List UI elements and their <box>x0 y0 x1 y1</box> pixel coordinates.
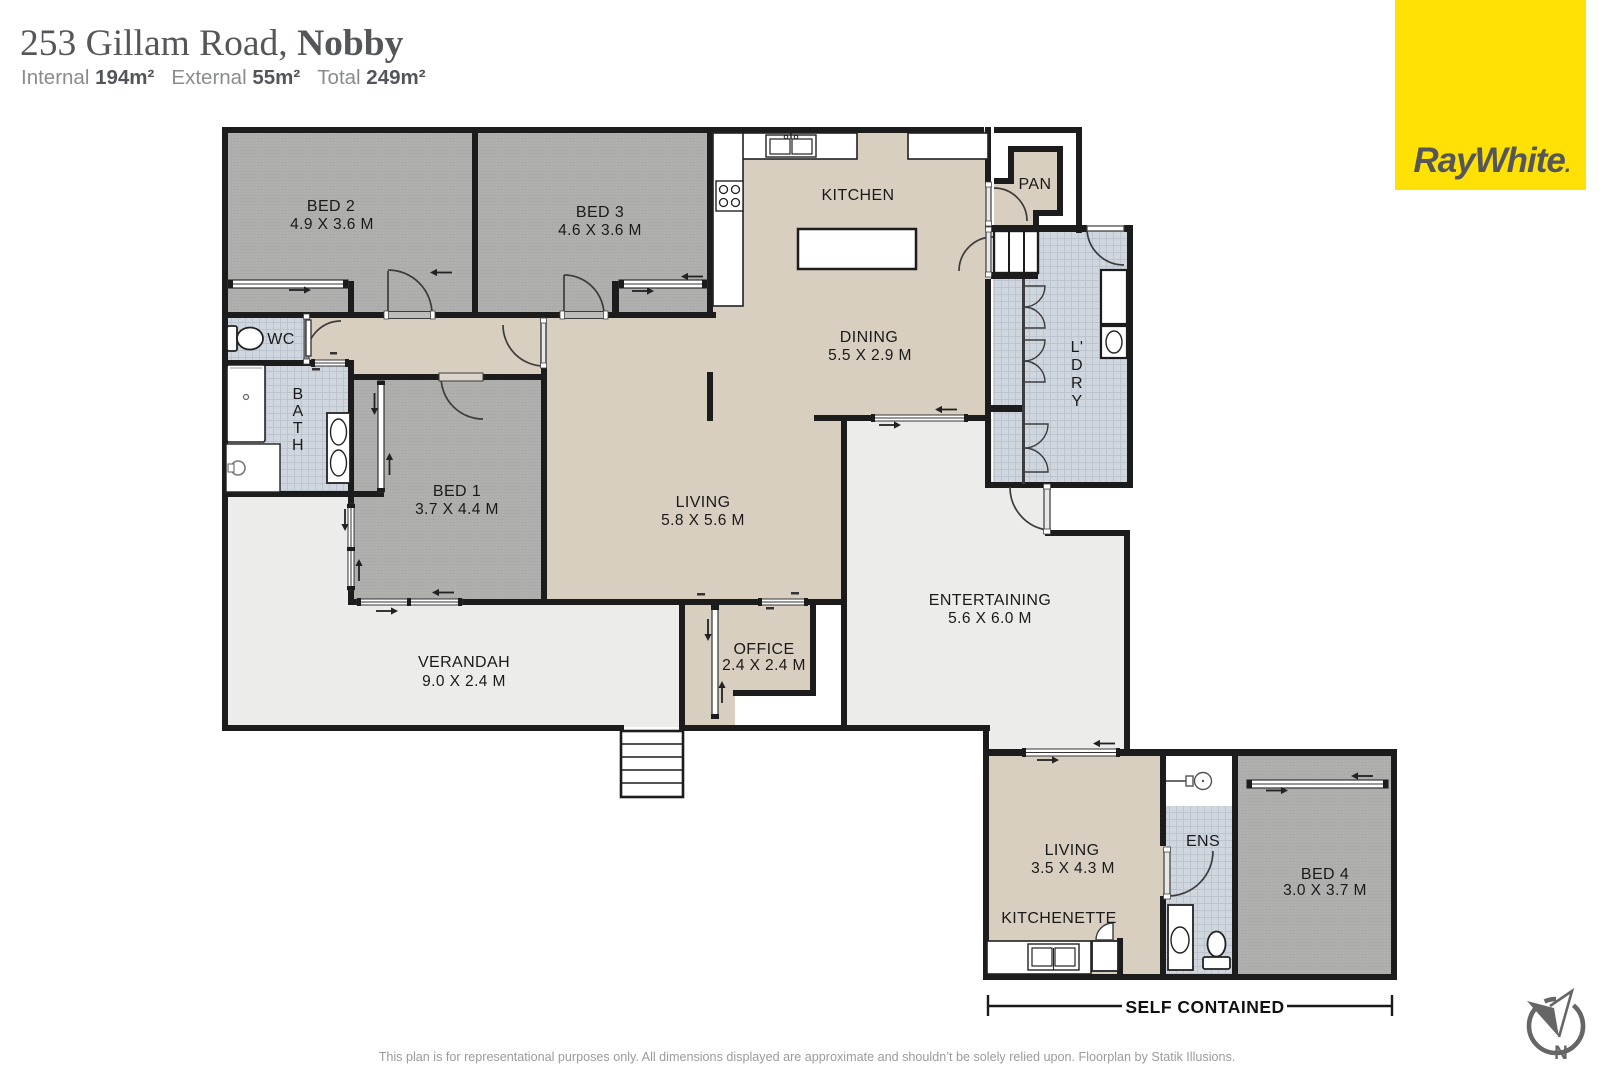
svg-text:A: A <box>292 403 303 420</box>
svg-text:WC: WC <box>267 331 294 348</box>
svg-text:4.9 X 3.6 M: 4.9 X 3.6 M <box>290 216 374 233</box>
svg-text:LIVING: LIVING <box>676 494 731 511</box>
svg-text:RayWhite.: RayWhite. <box>1413 141 1570 180</box>
svg-text:OFFICE: OFFICE <box>733 641 794 658</box>
svg-text:253 Gillam Road, Nobby: 253 Gillam Road, Nobby <box>20 23 404 64</box>
svg-text:BED 2: BED 2 <box>307 198 355 215</box>
svg-text:PAN: PAN <box>1019 176 1052 193</box>
svg-text:2.4 X 2.4 M: 2.4 X 2.4 M <box>722 657 806 674</box>
svg-text:This plan is for representatio: This plan is for representational purpos… <box>379 1050 1236 1064</box>
svg-text:D: D <box>1071 357 1083 374</box>
svg-text:LIVING: LIVING <box>1045 842 1100 859</box>
svg-text:BED 1: BED 1 <box>433 483 481 500</box>
svg-text:ENS: ENS <box>1186 833 1220 850</box>
svg-text:9.0 X 2.4 M: 9.0 X 2.4 M <box>422 673 506 690</box>
svg-text:L': L' <box>1071 339 1084 356</box>
svg-text:4.6 X 3.6 M: 4.6 X 3.6 M <box>558 222 642 239</box>
svg-text:ENTERTAINING: ENTERTAINING <box>929 592 1051 609</box>
svg-text:KITCHENETTE: KITCHENETTE <box>1001 910 1117 927</box>
svg-text:B: B <box>292 386 303 403</box>
svg-text:H: H <box>292 437 304 454</box>
svg-text:3.7 X 4.4 M: 3.7 X 4.4 M <box>415 501 499 518</box>
svg-text:DINING: DINING <box>840 329 898 346</box>
svg-text:KITCHEN: KITCHEN <box>821 187 894 204</box>
svg-text:Y: Y <box>1071 393 1082 410</box>
svg-text:3.0 X 3.7 M: 3.0 X 3.7 M <box>1283 882 1367 899</box>
svg-text:SELF CONTAINED: SELF CONTAINED <box>1125 997 1284 1017</box>
svg-text:BED 3: BED 3 <box>576 204 624 221</box>
svg-text:3.5 X 4.3 M: 3.5 X 4.3 M <box>1031 860 1115 877</box>
svg-text:Internal 194m² External 55m²: Internal 194m² External 55m² Total 249m² <box>21 66 426 89</box>
svg-text:BED 4: BED 4 <box>1301 866 1349 883</box>
svg-text:VERANDAH: VERANDAH <box>418 654 510 671</box>
svg-text:5.6 X 6.0 M: 5.6 X 6.0 M <box>948 610 1032 627</box>
svg-text:R: R <box>1071 375 1083 392</box>
svg-text:T: T <box>293 420 303 437</box>
svg-text:5.5 X 2.9 M: 5.5 X 2.9 M <box>828 347 912 364</box>
svg-text:N: N <box>1554 1043 1568 1064</box>
svg-text:5.8 X 5.6 M: 5.8 X 5.6 M <box>661 512 745 529</box>
